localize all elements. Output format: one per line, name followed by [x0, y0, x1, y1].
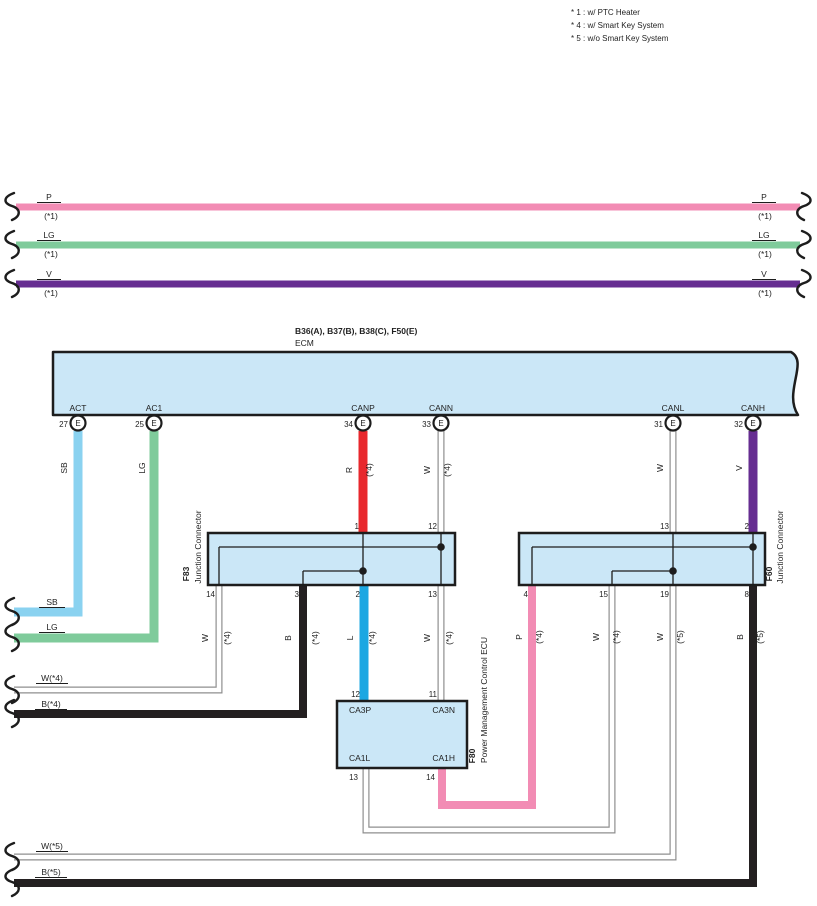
- diagram-vertical-label: (*4): [367, 631, 377, 645]
- ecm-pin-number: 33: [422, 420, 431, 429]
- diagram-label: (*1): [44, 211, 58, 221]
- diagram-label: (*1): [758, 249, 772, 259]
- diagram-label: CA1H: [432, 753, 455, 763]
- diagram-label: ECM: [295, 338, 314, 348]
- connector-pin-number: 14: [426, 773, 435, 782]
- connector-pin-number: 19: [660, 590, 669, 599]
- ecm-box: [53, 352, 798, 415]
- legend-note-4: * 4 : w/ Smart Key System: [571, 19, 668, 32]
- legend-note-5: * 5 : w/o Smart Key System: [571, 32, 668, 45]
- diagram-label: B(*5): [41, 867, 61, 877]
- diagram-vertical-label: Power Management Control ECU: [479, 637, 489, 763]
- diagram-label: W(*4): [41, 673, 63, 683]
- diagram-vertical-label: (*5): [755, 630, 765, 644]
- diagram-vertical-label: F83: [181, 566, 191, 581]
- diagram-vertical-label: (*4): [442, 463, 452, 477]
- ecm-pin-label-act: ACT: [70, 403, 87, 413]
- diagram-vertical-label: (*4): [611, 630, 621, 644]
- connector-pin-number: 2: [356, 590, 361, 599]
- ecm-pin-number: 25: [135, 420, 144, 429]
- diagram-label: (*1): [758, 288, 772, 298]
- ecm-pin-connector-letter: E: [75, 419, 80, 428]
- junction-dot: [437, 543, 445, 551]
- connector-pin-number: 13: [349, 773, 358, 782]
- diagram-vertical-label: (*5): [675, 630, 685, 644]
- legend-note-1: * 1 : w/ PTC Heater: [571, 6, 668, 19]
- diagram-vertical-label: B: [283, 635, 293, 641]
- diagram-vertical-label: P: [514, 634, 524, 640]
- diagram-vertical-label: W: [422, 466, 432, 474]
- diagram-label: W(*5): [41, 841, 63, 851]
- diagram-vertical-label: SB: [59, 462, 69, 474]
- connector-pin-number: 2: [745, 522, 750, 531]
- connector-pin-number: 4: [524, 590, 529, 599]
- diagram-vertical-label: (*4): [222, 631, 232, 645]
- diagram-vertical-label: L: [345, 635, 355, 640]
- ecm-pin-label-canp: CANP: [351, 403, 375, 413]
- diagram-vertical-label: W: [200, 634, 210, 642]
- ecm-pin-number: 32: [734, 420, 743, 429]
- ecm-pin-connector-letter: E: [360, 419, 365, 428]
- diagram-label: (*1): [44, 288, 58, 298]
- connector-pin-number: 13: [660, 522, 669, 531]
- connector-pin-number: 8: [745, 590, 750, 599]
- ecm-pin-connector-letter: E: [750, 419, 755, 428]
- connector-pin-number: 11: [429, 690, 438, 699]
- diagram-vertical-label: (*4): [310, 631, 320, 645]
- diagram-label: (*1): [44, 249, 58, 259]
- diagram-label: (*1): [758, 211, 772, 221]
- diagram-vertical-label: (*4): [444, 631, 454, 645]
- diagram-label: P: [46, 192, 52, 202]
- diagram-label: V: [761, 269, 767, 279]
- ecm-pin-connector-letter: E: [670, 419, 675, 428]
- diagram-vertical-label: R: [344, 467, 354, 473]
- diagram-label: P: [761, 192, 767, 202]
- diagram-label: CA3P: [349, 705, 372, 715]
- connector-pin-number: 1: [355, 522, 360, 531]
- diagram-vertical-label: V: [734, 465, 744, 471]
- ecm-pin-number: 34: [344, 420, 353, 429]
- f60-junction-connector-box: [519, 533, 765, 585]
- diagram-vertical-label: W: [591, 633, 601, 641]
- legend-notes: * 1 : w/ PTC Heater * 4 : w/ Smart Key S…: [571, 6, 668, 45]
- wiring-diagram-page: ACT27EAC125ECANP34ECANN33ECANL31ECANH32E…: [0, 0, 817, 906]
- connector-pin-number: 12: [351, 690, 360, 699]
- ecm-pin-label-canh: CANH: [741, 403, 765, 413]
- diagram-label: LG: [758, 230, 769, 240]
- diagram-vertical-label: F60: [764, 566, 774, 581]
- diagram-label: LG: [43, 230, 54, 240]
- ecm-pin-label-ac1: AC1: [146, 403, 163, 413]
- wiring-diagram-canvas: ACT27EAC125ECANP34ECANN33ECANL31ECANH32E…: [0, 0, 817, 906]
- wire-sb-act: [14, 431, 78, 612]
- ecm-pin-connector-letter: E: [151, 419, 156, 428]
- ecm-pin-connector-letter: E: [438, 419, 443, 428]
- diagram-label: B(*4): [41, 699, 61, 709]
- junction-dot: [669, 567, 677, 575]
- ecm-pin-label-cann: CANN: [429, 403, 453, 413]
- diagram-vertical-label: Junction Connector: [193, 510, 203, 583]
- diagram-vertical-label: Junction Connector: [775, 510, 785, 583]
- diagram-label: B36(A), B37(B), B38(C), F50(E): [295, 326, 417, 336]
- connector-pin-number: 15: [599, 590, 608, 599]
- diagram-vertical-label: (*4): [534, 630, 544, 644]
- connector-pin-number: 14: [206, 590, 215, 599]
- ecm-pin-number: 31: [654, 420, 663, 429]
- diagram-vertical-label: B: [735, 634, 745, 640]
- junction-dot: [359, 567, 367, 575]
- ecm-pin-number: 27: [59, 420, 68, 429]
- connector-pin-number: 12: [428, 522, 437, 531]
- junction-dot: [749, 543, 757, 551]
- wire-lg-ac1: [14, 431, 154, 638]
- diagram-label: CA1L: [349, 753, 371, 763]
- connector-pin-number: 13: [428, 590, 437, 599]
- diagram-label: LG: [46, 622, 57, 632]
- diagram-vertical-label: (*4): [364, 463, 374, 477]
- diagram-vertical-label: LG: [137, 462, 147, 473]
- diagram-vertical-label: W: [655, 464, 665, 472]
- diagram-vertical-label: W: [422, 634, 432, 642]
- diagram-label: CA3N: [432, 705, 455, 715]
- ecm-pin-label-canl: CANL: [662, 403, 685, 413]
- diagram-label: V: [46, 269, 52, 279]
- diagram-vertical-label: W: [655, 633, 665, 641]
- connector-pin-number: 3: [295, 590, 300, 599]
- diagram-vertical-label: F80: [467, 748, 477, 763]
- diagram-label: SB: [46, 597, 58, 607]
- f83-junction-connector-box: [208, 533, 455, 585]
